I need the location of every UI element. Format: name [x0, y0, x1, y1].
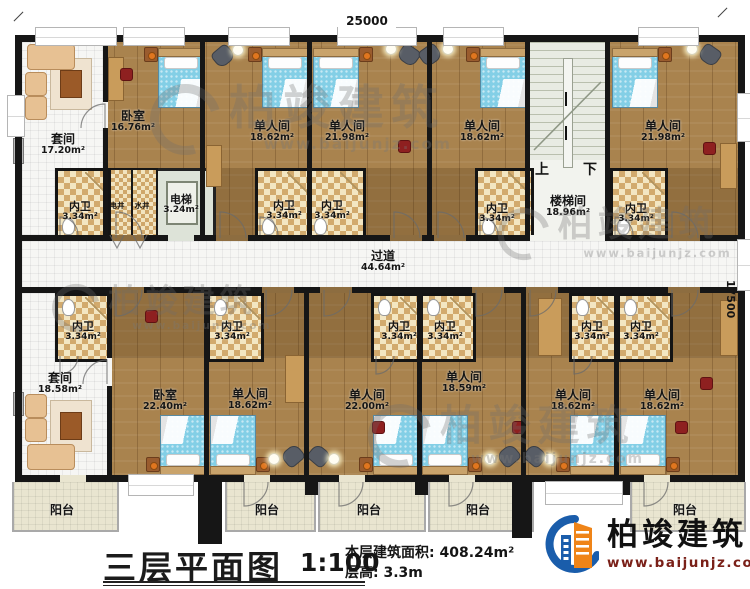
company-name: 柏竣建筑: [607, 520, 750, 551]
room-label-single: 单人间22.00m²: [345, 389, 389, 412]
label-electrical-shaft: 电井: [110, 200, 125, 211]
stair-up-label: 上: [535, 159, 549, 179]
room-label-single: 单人间18.62m²: [460, 120, 504, 143]
room-label-single: 单人间18.62m²: [250, 120, 294, 143]
room-label-single: 单人间18.62m²: [228, 388, 272, 411]
room-label-single: 单人间21.98m²: [641, 120, 685, 143]
room-label-single: 单人间18.62m²: [551, 389, 595, 412]
room-label-single: 单人间18.59m²: [442, 371, 486, 394]
room-label-suite-top: 套间17.20m²: [41, 133, 85, 156]
room-label-bath: 内卫3.34m²: [214, 321, 250, 343]
room-label-stairwell: 楼梯间18.96m²: [546, 195, 590, 218]
room-label-bath: 内卫3.34m²: [314, 200, 350, 222]
company-logo-icon: [545, 514, 599, 576]
room-label-corridor: 过道44.64m²: [361, 250, 405, 273]
room-label-bath: 内卫3.34m²: [381, 321, 417, 343]
room-label-single: 单人间18.62m²: [640, 389, 684, 412]
dimension-height: 17500: [724, 280, 737, 318]
balcony-label: 阳台: [357, 504, 381, 517]
floor-plan-sheet: 套间17.20m² 卧室16.76m² 单人间18.62m² 单人间21.98m…: [0, 0, 750, 589]
balcony-label: 阳台: [255, 504, 279, 517]
balcony-label: 阳台: [50, 504, 74, 517]
door-arcs: [0, 0, 750, 589]
company-website: www.baijunjz.com: [607, 555, 750, 571]
room-label-bath: 内卫3.34m²: [574, 321, 610, 343]
room-label-bath: 内卫3.34m²: [623, 321, 659, 343]
room-label-bedroom-top: 卧室16.76m²: [111, 110, 155, 133]
room-label-bath: 内卫3.34m²: [65, 321, 101, 343]
room-label-bath: 内卫3.34m²: [266, 200, 302, 222]
stair-down-label: 下: [583, 159, 597, 179]
room-label-bath: 内卫3.34m²: [62, 201, 98, 223]
room-label-bath: 内卫3.34m²: [618, 203, 654, 225]
title-underline: [103, 585, 365, 586]
room-label-bath: 内卫3.34m²: [479, 203, 515, 225]
title-underline: [103, 581, 365, 583]
floor-area-text: 本层建筑面积: 408.24m²: [345, 542, 514, 562]
company-logo: 柏竣建筑 www.baijunjz.com: [545, 514, 750, 576]
label-water-shaft: 水井: [135, 200, 150, 211]
room-label-bath: 内卫3.34m²: [427, 321, 463, 343]
room-label-single: 单人间21.98m²: [325, 120, 369, 143]
dimension-width: 25000: [338, 14, 396, 28]
floor-height-text: 层高: 3.3m: [345, 562, 423, 582]
room-label-bedroom-bottom: 卧室22.40m²: [143, 389, 187, 412]
room-label-elevator: 电梯3.24m²: [163, 194, 199, 216]
room-label-suite-bottom: 套间18.58m²: [38, 372, 82, 395]
balcony-label: 阳台: [466, 504, 490, 517]
